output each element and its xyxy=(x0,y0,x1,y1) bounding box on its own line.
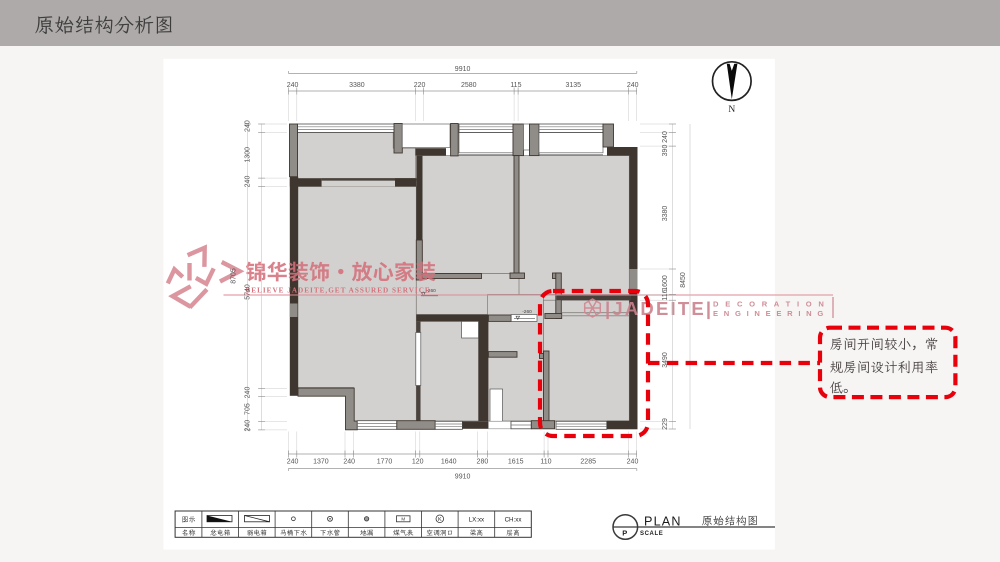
svg-text:D E C O R A T I O N: D E C O R A T I O N xyxy=(713,300,826,309)
svg-text:240: 240 xyxy=(245,420,252,432)
svg-text:240: 240 xyxy=(627,459,639,466)
svg-text:1600: 1600 xyxy=(662,275,669,291)
svg-text:110: 110 xyxy=(540,459,551,466)
svg-text:9910: 9910 xyxy=(455,474,471,481)
svg-text:3380: 3380 xyxy=(662,206,669,222)
svg-text:115: 115 xyxy=(510,82,521,89)
svg-text:3135: 3135 xyxy=(566,82,582,89)
svg-text:116: 116 xyxy=(662,289,669,300)
svg-text:5740: 5740 xyxy=(245,284,252,300)
svg-text:1370: 1370 xyxy=(313,459,329,466)
svg-text:9910: 9910 xyxy=(455,66,471,73)
svg-text:N: N xyxy=(728,105,735,115)
svg-text:280: 280 xyxy=(477,459,489,466)
svg-text:1300: 1300 xyxy=(245,147,252,163)
svg-text:LX:xx: LX:xx xyxy=(469,517,485,524)
svg-text:705: 705 xyxy=(245,403,252,415)
svg-text:K: K xyxy=(438,517,442,523)
svg-text:240: 240 xyxy=(662,131,669,143)
svg-text:M: M xyxy=(401,517,405,522)
svg-text:CH:xx: CH:xx xyxy=(505,517,523,524)
svg-text:120: 120 xyxy=(412,459,424,466)
svg-text:390: 390 xyxy=(662,145,669,157)
svg-text:E N G I N E E R I N G: E N G I N E E R I N G xyxy=(713,309,825,318)
svg-text:2285: 2285 xyxy=(580,459,596,466)
svg-text:240: 240 xyxy=(343,459,355,466)
svg-text:3380: 3380 xyxy=(349,82,365,89)
svg-text:BELIEVE JADEITE,GET ASSURED SE: BELIEVE JADEITE,GET ASSURED SERVICE xyxy=(246,286,431,294)
svg-text:1615: 1615 xyxy=(508,459,524,466)
svg-text:1770: 1770 xyxy=(377,459,393,466)
svg-text:-260: -260 xyxy=(522,309,532,315)
svg-text:SCALE: SCALE xyxy=(640,531,663,537)
svg-text:240: 240 xyxy=(287,459,299,466)
svg-text:8705: 8705 xyxy=(231,268,238,284)
svg-text:8450: 8450 xyxy=(680,272,687,288)
svg-text:3490: 3490 xyxy=(662,352,669,368)
svg-text:240: 240 xyxy=(245,176,252,188)
svg-text:229: 229 xyxy=(662,418,669,430)
svg-text:240: 240 xyxy=(245,387,252,399)
svg-text:PLAN: PLAN xyxy=(644,514,682,528)
svg-text:P: P xyxy=(622,528,627,537)
svg-text:1640: 1640 xyxy=(441,459,457,466)
svg-text:2580: 2580 xyxy=(461,82,477,89)
svg-text:240: 240 xyxy=(245,120,252,132)
svg-text:|JADEITE|: |JADEITE| xyxy=(605,298,713,319)
